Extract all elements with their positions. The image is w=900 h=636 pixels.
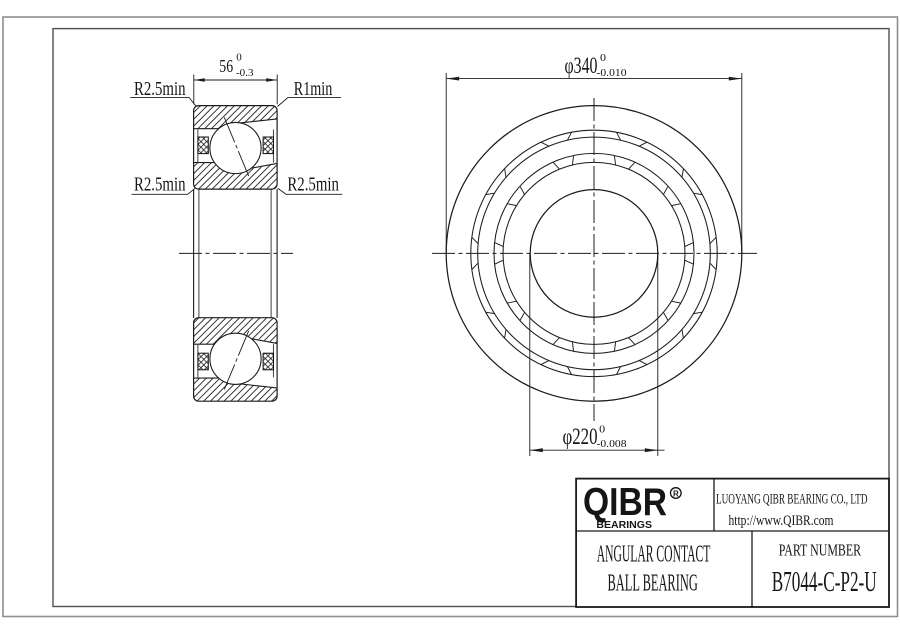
- svg-text:R: R: [673, 490, 679, 499]
- svg-text:QIBR: QIBR: [583, 481, 667, 524]
- svg-text:R2.5min: R2.5min: [134, 79, 186, 100]
- svg-text:BEARINGS: BEARINGS: [596, 519, 652, 531]
- svg-text:φ340: φ340: [565, 53, 598, 78]
- svg-text:R2.5min: R2.5min: [134, 174, 186, 195]
- svg-text:φ220: φ220: [563, 424, 598, 449]
- svg-text:http://www.QIBR.com: http://www.QIBR.com: [729, 513, 835, 529]
- svg-text:-0.3: -0.3: [236, 68, 254, 79]
- svg-text:R1min: R1min: [294, 79, 333, 100]
- svg-text:0: 0: [599, 425, 605, 436]
- svg-text:B7044-C-P2-U: B7044-C-P2-U: [772, 567, 877, 598]
- svg-text:0: 0: [600, 53, 606, 64]
- svg-text:ANGULAR CONTACT: ANGULAR CONTACT: [597, 542, 711, 568]
- svg-text:-0.008: -0.008: [597, 439, 627, 450]
- svg-text:LUOYANG QIBR BEARING CO., LTD: LUOYANG QIBR BEARING CO., LTD: [716, 492, 868, 508]
- svg-text:PART NUMBER: PART NUMBER: [779, 541, 862, 560]
- svg-text:-0.010: -0.010: [597, 68, 627, 79]
- svg-text:R2.5min: R2.5min: [287, 174, 339, 195]
- svg-text:0: 0: [236, 53, 242, 64]
- svg-text:BALL BEARING: BALL BEARING: [608, 571, 698, 597]
- svg-text:56: 56: [219, 56, 233, 76]
